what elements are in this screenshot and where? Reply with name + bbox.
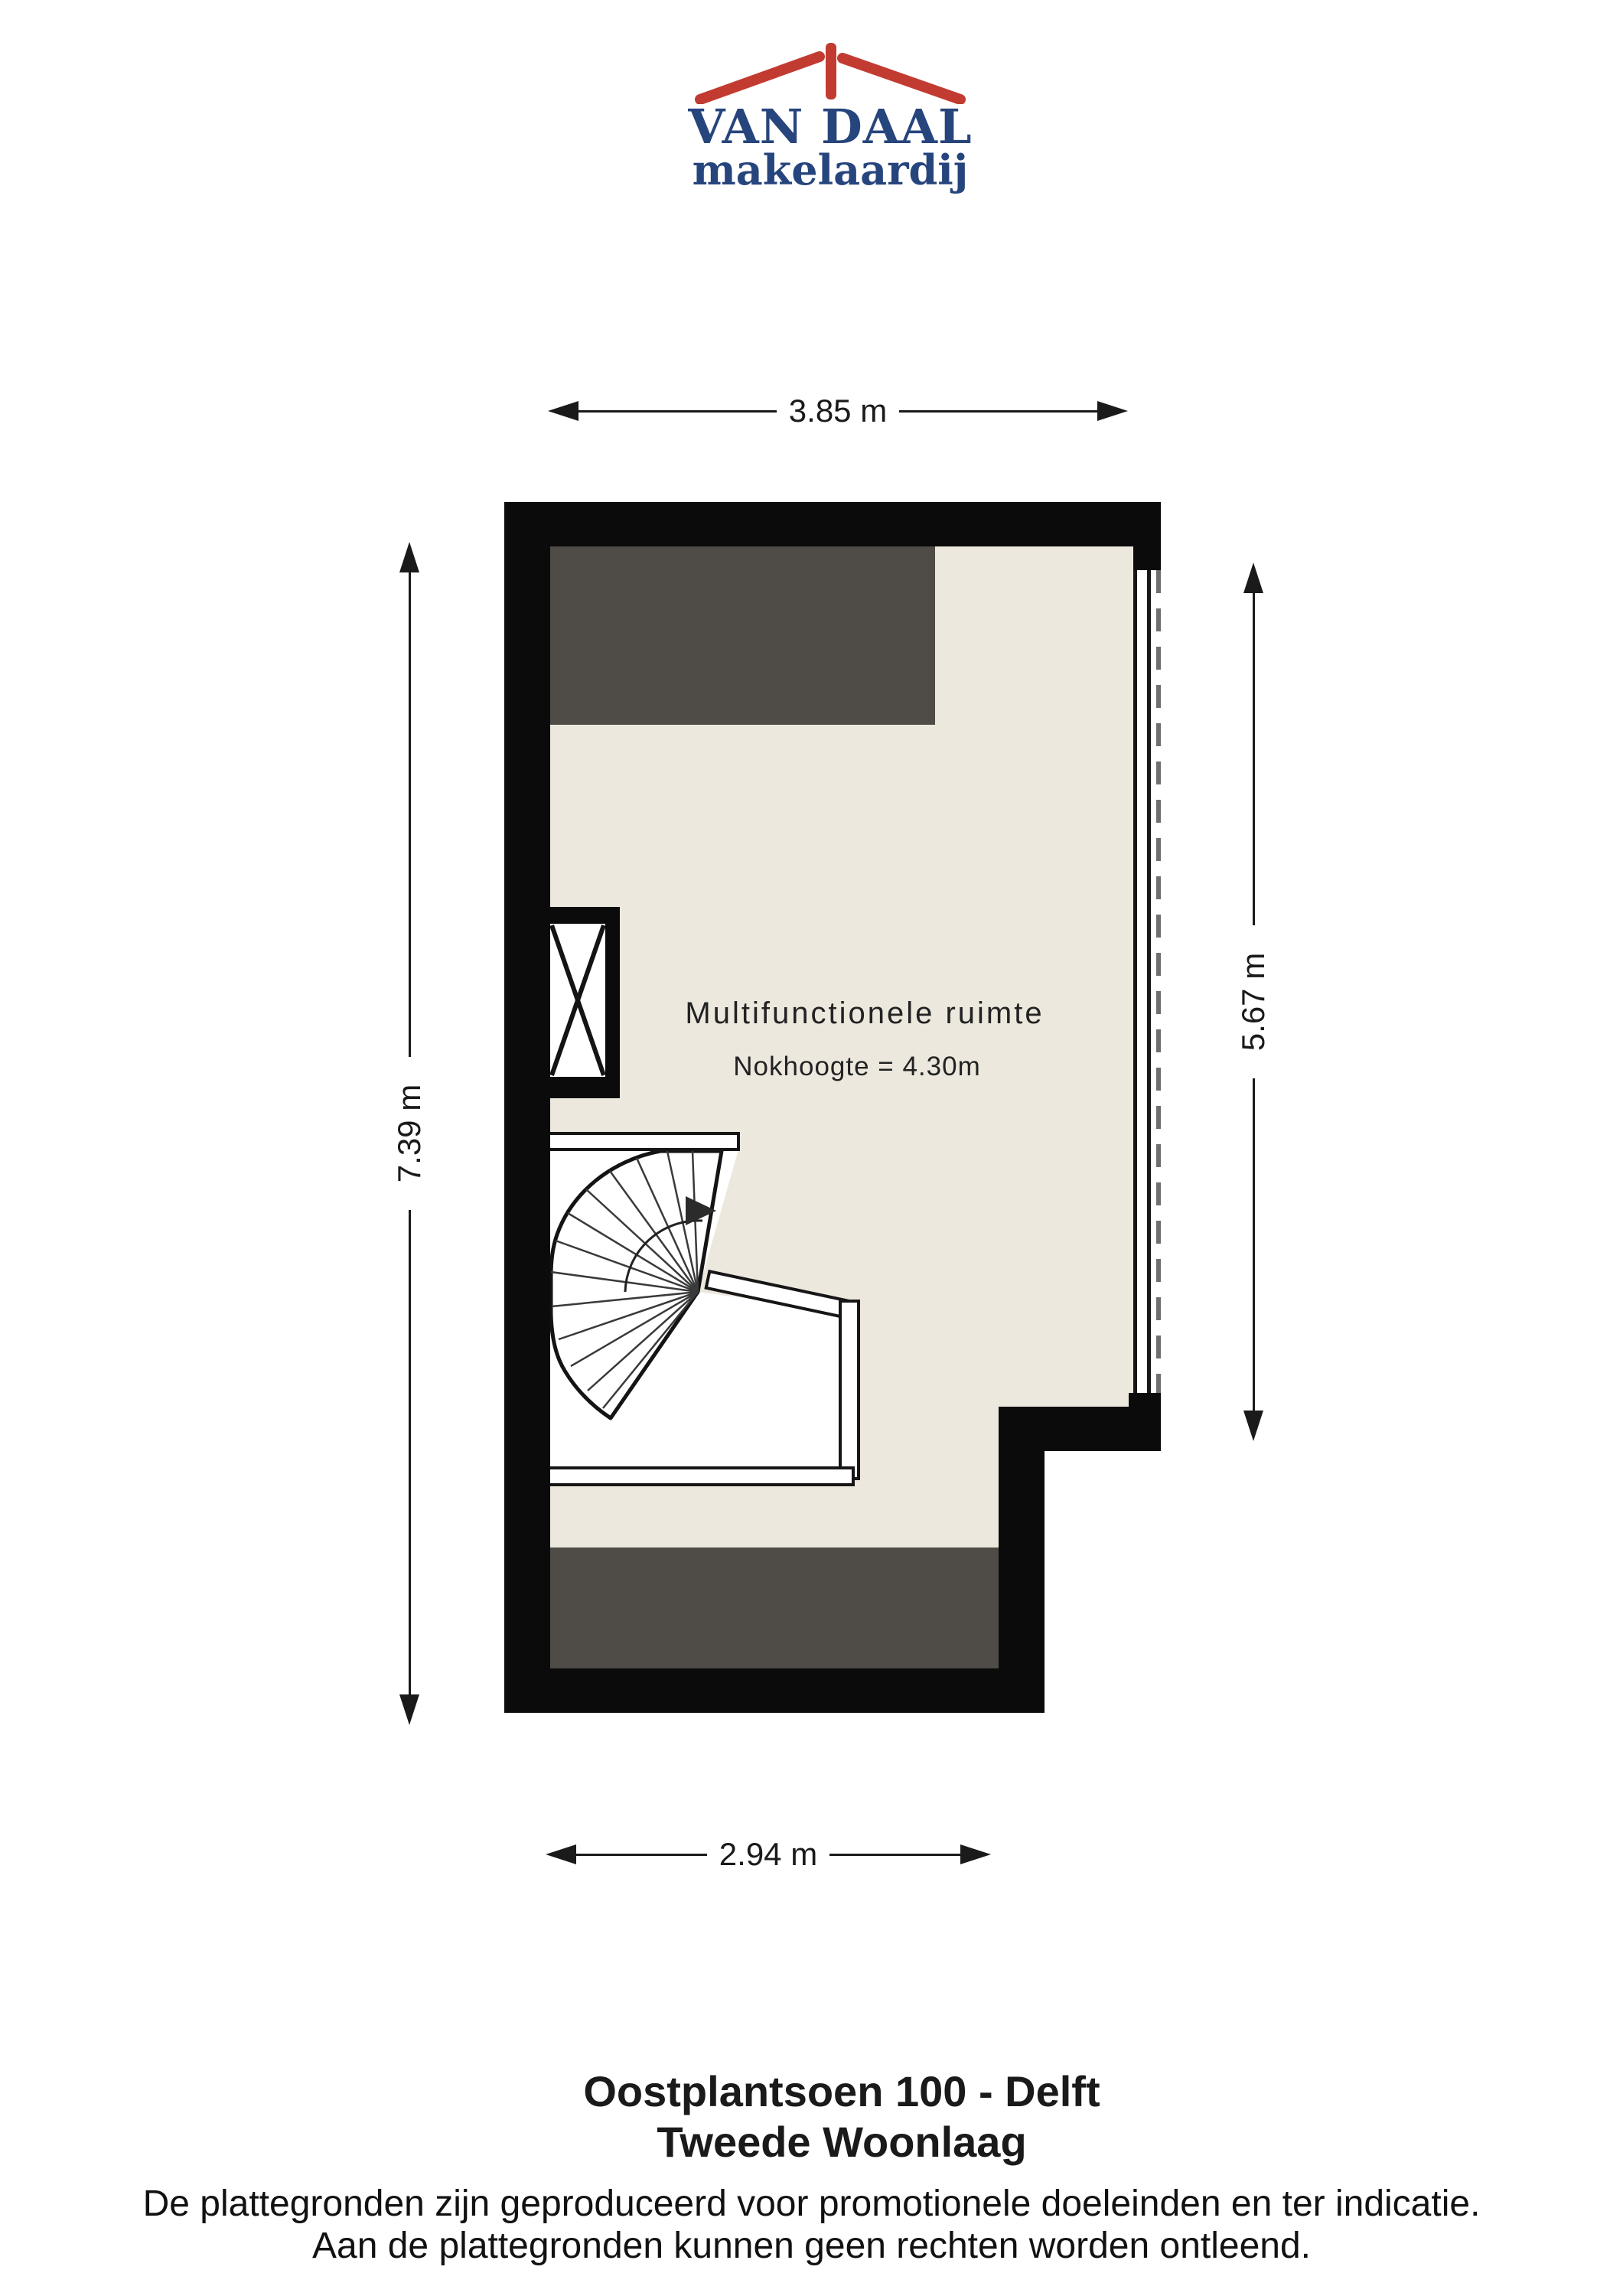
dimension-bottom: 2.94 m xyxy=(546,1839,991,1870)
agency-logo: VAN DAAL makelaardij xyxy=(650,20,1010,181)
dimension-top-label: 3.85 m xyxy=(777,393,899,429)
floorplan-page: VAN DAAL makelaardij xyxy=(0,0,1623,2296)
arrowhead-down-icon xyxy=(399,1694,419,1725)
arrowhead-right-icon xyxy=(1097,401,1128,421)
wall-left xyxy=(504,502,550,1713)
low-ceiling-zone-bottom xyxy=(550,1548,999,1668)
arrowhead-up-icon xyxy=(1243,563,1263,593)
window-inner-line xyxy=(1133,570,1137,1393)
spiral-staircase xyxy=(536,1114,865,1496)
dimension-line xyxy=(578,410,777,413)
dimension-top: 3.85 m xyxy=(548,396,1128,426)
dimension-line xyxy=(409,1210,411,1694)
stair-landing-edge-top xyxy=(548,1133,738,1150)
dimension-bottom-label: 2.94 m xyxy=(707,1836,829,1873)
wall-bottom xyxy=(504,1668,1045,1713)
roof-icon xyxy=(693,20,968,104)
arrowhead-left-icon xyxy=(546,1844,576,1864)
dimension-line xyxy=(1253,593,1255,925)
low-ceiling-zone-top xyxy=(550,546,935,725)
arrowhead-down-icon xyxy=(1243,1411,1263,1441)
wall-right-top xyxy=(1133,502,1161,570)
dimension-left-label: 7.39 m xyxy=(393,1057,425,1210)
logo-subtitle: makelaardij xyxy=(650,149,1010,191)
disclaimer: De plattegronden zijn geproduceerd voor … xyxy=(0,2183,1623,2267)
window-right-wall xyxy=(1133,570,1161,1393)
wall-top xyxy=(504,502,1159,546)
dimension-right-label: 5.67 m xyxy=(1237,925,1269,1078)
dimension-line xyxy=(899,410,1097,413)
logo-title: VAN DAAL xyxy=(650,105,1010,149)
wall-step-vertical xyxy=(999,1407,1045,1713)
dimension-line xyxy=(829,1854,960,1856)
stair-landing-edge-bottom xyxy=(548,1468,853,1485)
address-title: Oostplantsoen 100 - Delft xyxy=(298,2066,1385,2117)
disclaimer-line2: Aan de plattegronden kunnen geen rechten… xyxy=(0,2225,1623,2267)
dimension-line xyxy=(1253,1078,1255,1411)
disclaimer-line1: De plattegronden zijn geproduceerd voor … xyxy=(0,2183,1623,2225)
window-outer-line xyxy=(1147,570,1151,1393)
arrowhead-left-icon xyxy=(548,401,578,421)
dimension-right: 5.67 m xyxy=(1237,563,1269,1441)
dimension-left: 7.39 m xyxy=(393,542,425,1725)
arrowhead-up-icon xyxy=(399,542,419,572)
dimension-line xyxy=(409,572,411,1057)
wall-window-sill xyxy=(1129,1393,1161,1408)
stair-railing-vertical xyxy=(840,1301,859,1479)
room-name-label: Multifunctionele ruimte xyxy=(597,996,1133,1031)
floor-title: Tweede Woonlaag xyxy=(298,2117,1385,2167)
footer-titles: Oostplantsoen 100 - Delft Tweede Woonlaa… xyxy=(298,2066,1385,2167)
room-height-label: Nokhoogte = 4.30m xyxy=(597,1052,1117,1082)
arrowhead-right-icon xyxy=(960,1844,991,1864)
window-dashed-line xyxy=(1156,570,1161,1393)
dimension-line xyxy=(576,1854,707,1856)
